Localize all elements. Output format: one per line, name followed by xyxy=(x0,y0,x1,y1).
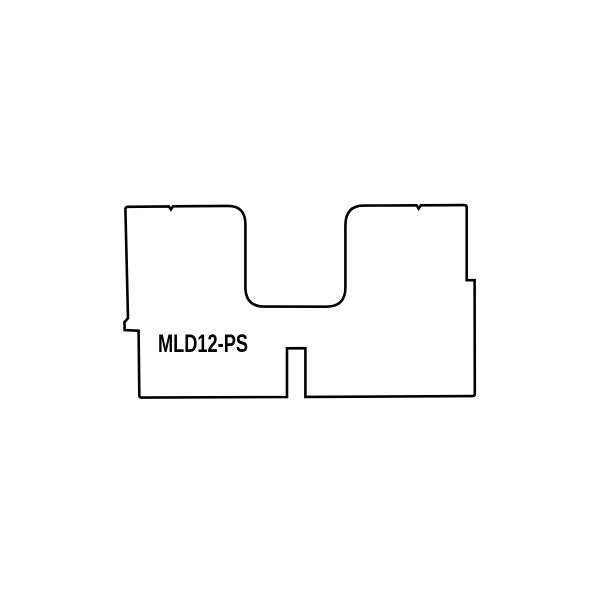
part-outline-shape xyxy=(125,205,475,398)
page-canvas: MLD12-PS xyxy=(0,0,600,600)
part-drawing-canvas: MLD12-PS xyxy=(0,0,600,600)
part-label: MLD12-PS xyxy=(158,330,248,358)
